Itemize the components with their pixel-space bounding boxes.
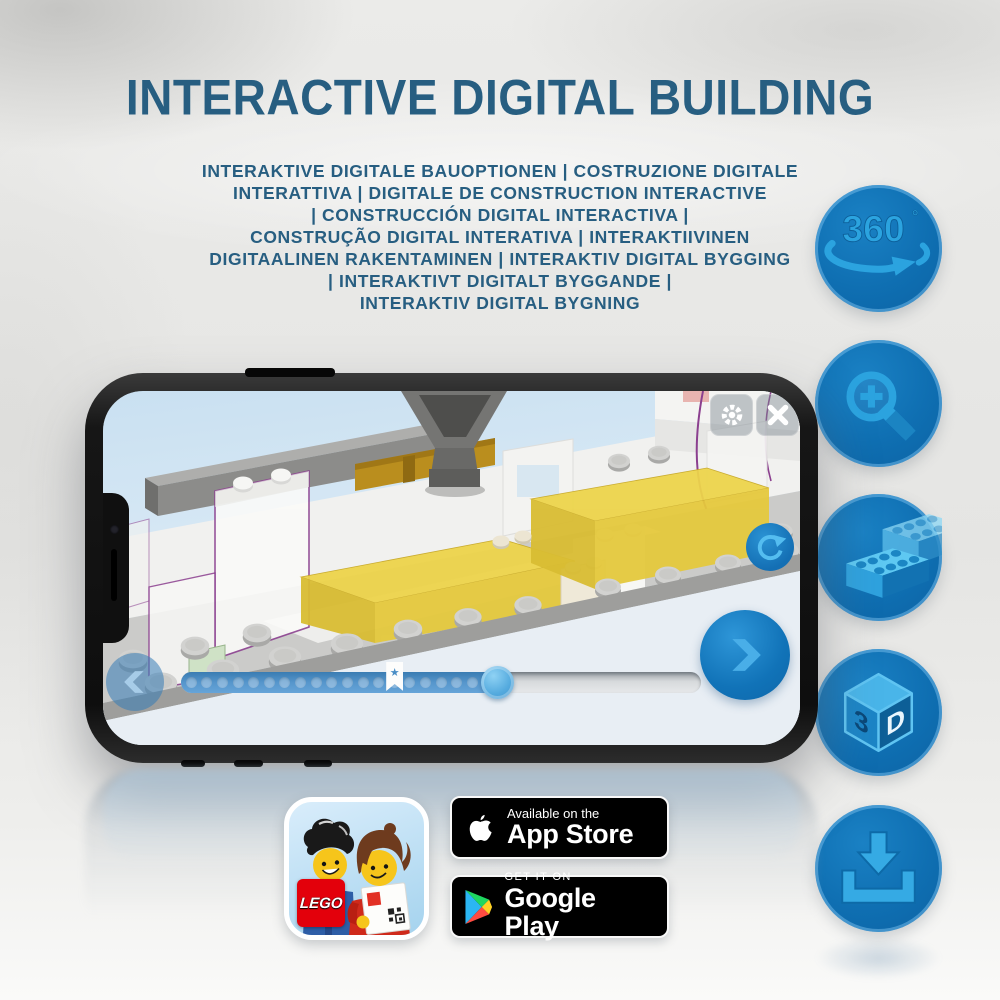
feature-icon-3d: 3 D — [815, 649, 942, 776]
phone-mute-switch — [181, 760, 205, 767]
earpiece-speaker — [111, 549, 117, 601]
product-marketing-image: INTERACTIVE DIGITAL BUILDING INTERAKTIVE… — [0, 0, 1000, 1000]
progress-step-dot — [264, 677, 275, 688]
feature-icon-download — [815, 805, 942, 932]
progress-fill — [181, 672, 498, 693]
phone-power-button — [245, 368, 335, 377]
progress-step-dot — [420, 677, 431, 688]
progress-step-dot — [311, 677, 322, 688]
subtitle-line: INTERAKTIV DIGITAL BYGNING — [100, 292, 900, 314]
progress-bar[interactable]: ★ — [181, 672, 701, 693]
subtitle-line: INTERATTIVA | DIGITALE DE CONSTRUCTION I… — [100, 182, 900, 204]
phone-volume-down-button — [304, 760, 332, 767]
front-camera — [110, 525, 119, 534]
subtitle-line: DIGITAALINEN RAKENTAMINEN | INTERAKTIV D… — [100, 248, 900, 270]
lego-app-icon: LEGO — [284, 797, 429, 940]
rotate-model-button[interactable] — [746, 523, 794, 571]
instruction-paper — [361, 883, 410, 935]
subtitle: INTERAKTIVE DIGITALE BAUOPTIONEN | COSTR… — [100, 160, 900, 314]
progress-step-dot — [279, 677, 290, 688]
app-store-badge[interactable]: Available on the App Store — [450, 796, 669, 859]
apple-logo-icon — [464, 809, 496, 847]
download-icon — [815, 805, 942, 932]
subtitle-line: | CONSTRUCCIÓN DIGITAL INTERACTIVA | — [100, 204, 900, 226]
progress-step-dot — [451, 677, 462, 688]
progress-step-dot — [358, 677, 369, 688]
previous-step-button[interactable] — [106, 653, 164, 711]
phone-screen: ★ — [103, 391, 800, 745]
progress-step-dot — [467, 677, 478, 688]
progress-step-dot — [295, 677, 306, 688]
360-label: 360 — [842, 207, 904, 249]
page-title: INTERACTIVE DIGITAL BUILDING — [0, 68, 1000, 126]
progress-step-dot — [201, 677, 212, 688]
degree-symbol: ° — [912, 206, 919, 226]
360-rotation-icon: 360 ° — [815, 185, 942, 312]
phone-notch — [103, 493, 129, 643]
phone-frame: ★ — [85, 373, 818, 763]
app-store-name: App Store — [507, 820, 633, 848]
feature-icon-zoom — [815, 340, 942, 467]
lego-logo: LEGO — [297, 879, 345, 927]
minifig-girl — [348, 823, 411, 935]
google-play-badge[interactable]: GET IT ON Google Play — [450, 875, 669, 938]
icon-reflection — [815, 936, 942, 980]
zoom-in-magnifier-icon — [815, 340, 942, 467]
subtitle-line: INTERAKTIVE DIGITALE BAUOPTIONEN | COSTR… — [100, 160, 900, 182]
feature-icon-bricks — [815, 494, 942, 621]
google-play-name: Google Play — [505, 884, 655, 941]
phone-volume-up-button — [234, 760, 263, 767]
progress-step-dot — [326, 677, 337, 688]
next-step-button[interactable] — [700, 610, 790, 700]
progress-step-dot — [233, 677, 244, 688]
close-icon — [765, 402, 791, 428]
progress-thumb[interactable] — [481, 666, 514, 699]
progress-step-dot — [342, 677, 353, 688]
progress-step-dot — [248, 677, 259, 688]
progress-step-dot — [404, 677, 415, 688]
gear-icon — [719, 402, 745, 428]
progress-step-dot — [217, 677, 228, 688]
close-button[interactable] — [756, 394, 799, 436]
chevron-left-icon — [122, 669, 148, 695]
settings-button[interactable] — [710, 394, 753, 436]
3d-cube-icon: 3 D — [815, 649, 942, 776]
progress-step-dot — [373, 677, 384, 688]
rotate-icon — [753, 530, 787, 564]
progress-step-dot — [186, 677, 197, 688]
subtitle-line: CONSTRUÇÃO DIGITAL INTERATIVA | INTERAKT… — [100, 226, 900, 248]
google-play-icon — [464, 889, 494, 925]
feature-icon-360: 360 ° — [815, 185, 942, 312]
subtitle-line: | INTERAKTIVT DIGITALT BYGGANDE | — [100, 270, 900, 292]
chevron-right-icon — [726, 636, 764, 674]
app-store-tagline: Available on the — [507, 807, 633, 821]
progress-step-dot — [436, 677, 447, 688]
lego-bricks-icon — [815, 494, 942, 621]
